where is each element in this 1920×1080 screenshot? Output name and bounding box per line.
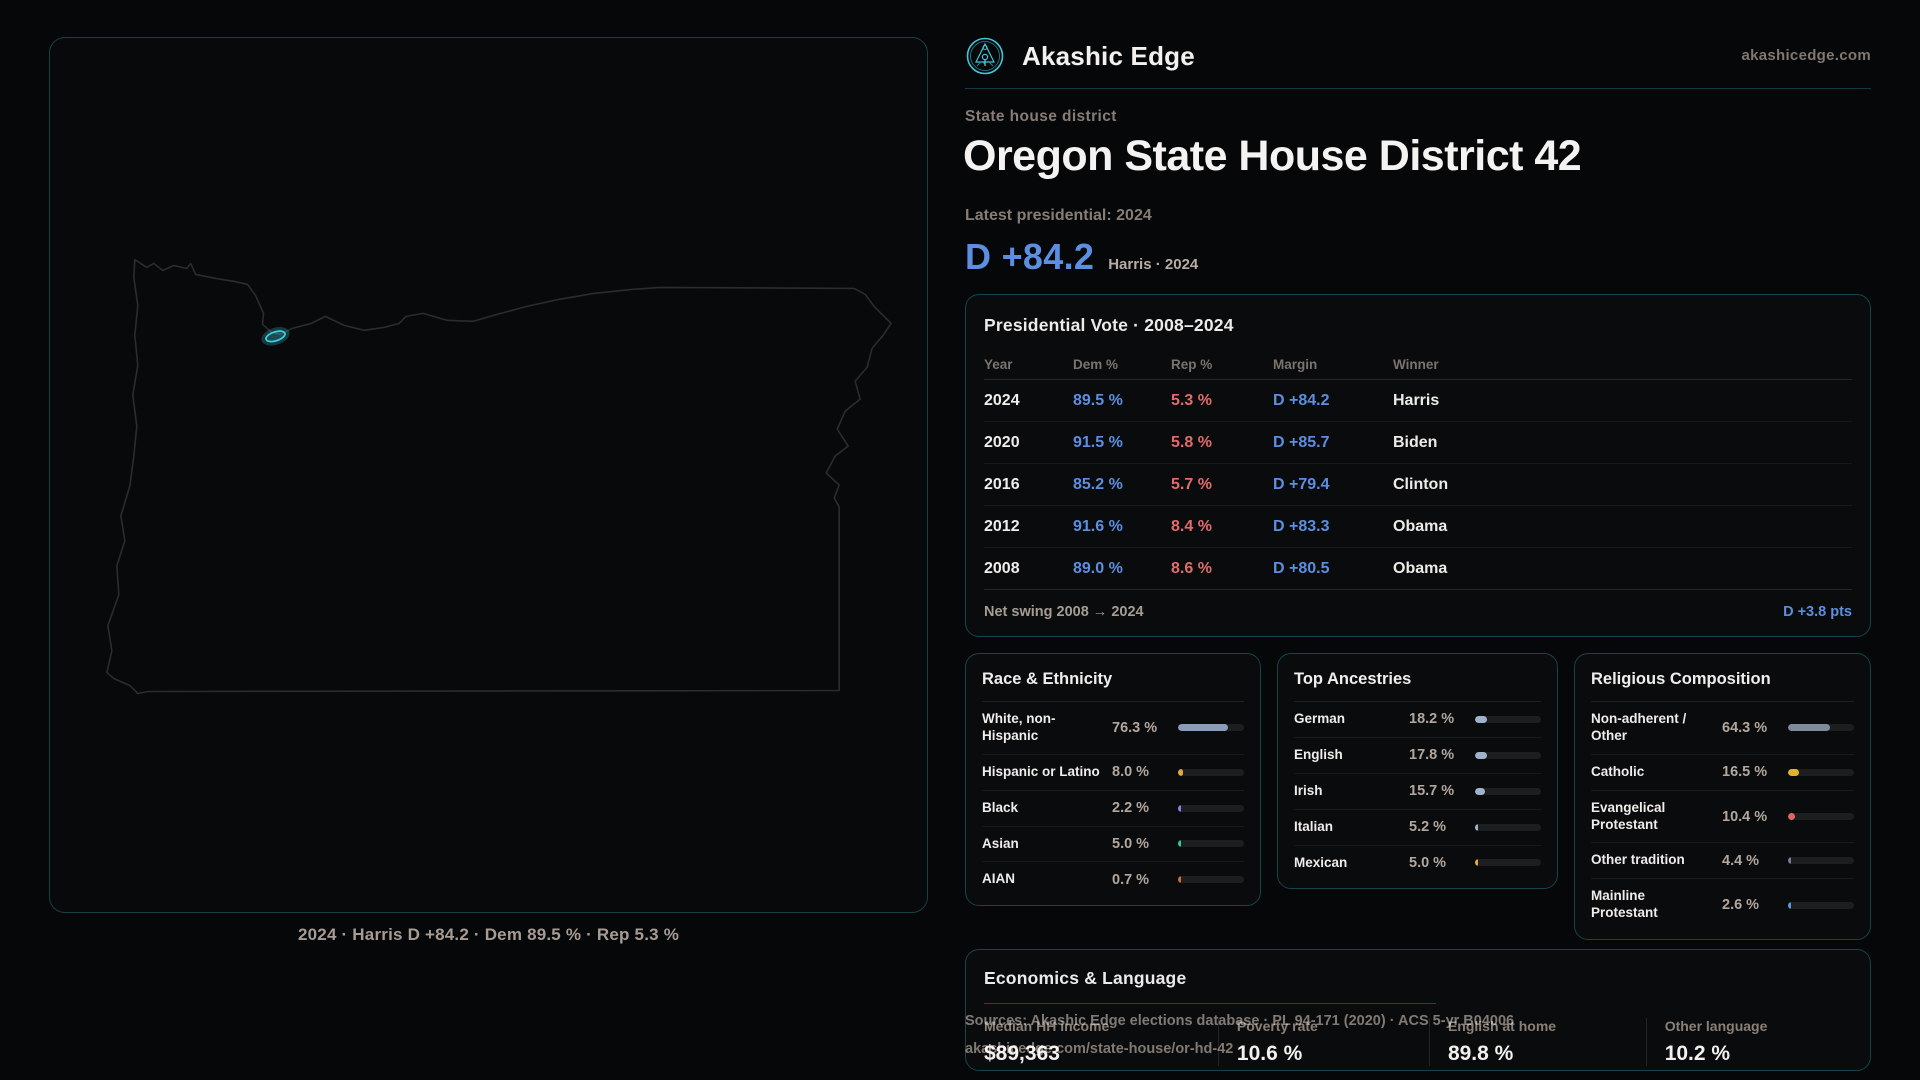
map-caption: 2024 · Harris D +84.2 · Dem 89.5 % · Rep… — [49, 925, 928, 945]
table-row: 2016 85.2 % 5.7 % D +79.4 Clinton — [984, 464, 1852, 506]
stat-label: Black — [982, 800, 1102, 817]
latest-presidential-label: Latest presidential: 2024 — [965, 207, 1152, 225]
stat-value: 5.0 % — [1409, 855, 1465, 871]
stat-value: 2.2 % — [1112, 800, 1168, 816]
year-cell: 2024 — [984, 392, 1073, 410]
list-item: AIAN 0.7 % — [982, 862, 1244, 897]
rep-cell: 5.7 % — [1171, 476, 1273, 494]
year-cell: 2012 — [984, 518, 1073, 536]
dem-cell: 89.0 % — [1073, 560, 1171, 578]
stat-english-at-home: English at home 89.8 % — [1429, 1018, 1646, 1066]
stat-value: 10.6 % — [1237, 1042, 1411, 1066]
stat-value: 89.8 % — [1448, 1042, 1628, 1066]
stat-bar — [1178, 840, 1244, 847]
list-item: White, non-Hispanic 76.3 % — [982, 702, 1244, 755]
net-swing-row: Net swing 2008 → 2024 D +3.8 pts — [984, 589, 1852, 633]
stat-label: English at home — [1448, 1018, 1628, 1034]
oregon-outline — [107, 259, 891, 693]
stat-label: Catholic — [1591, 764, 1712, 781]
net-swing-value: D +3.8 pts — [1783, 604, 1852, 620]
race-card-title: Race & Ethnicity — [982, 670, 1244, 702]
stat-label: Mexican — [1294, 855, 1399, 872]
col-margin: Margin — [1273, 357, 1393, 372]
col-rep: Rep % — [1171, 357, 1273, 372]
margin-cell: D +79.4 — [1273, 476, 1393, 494]
stat-bar — [1475, 859, 1541, 866]
margin-cell: D +80.5 — [1273, 560, 1393, 578]
brand-bar: Akashic Edge akashicedge.com — [965, 36, 1871, 78]
stat-value: 16.5 % — [1722, 764, 1778, 780]
stat-other-language: Other language 10.2 % — [1646, 1018, 1852, 1066]
winner-cell: Biden — [1393, 434, 1852, 452]
dem-cell: 85.2 % — [1073, 476, 1171, 494]
dem-cell: 89.5 % — [1073, 392, 1171, 410]
year-cell: 2008 — [984, 560, 1073, 578]
year-cell: 2016 — [984, 476, 1073, 494]
stat-value: 10.2 % — [1665, 1042, 1834, 1066]
stat-bar — [1788, 902, 1854, 909]
list-item: Non-adherent / Other 64.3 % — [1591, 702, 1854, 755]
list-item: Mainline Protestant 2.6 % — [1591, 879, 1854, 931]
stat-value: 15.7 % — [1409, 783, 1465, 799]
col-dem: Dem % — [1073, 357, 1171, 372]
dem-cell: 91.5 % — [1073, 434, 1171, 452]
presidential-table: Year Dem % Rep % Margin Winner 2024 89.5… — [984, 350, 1852, 633]
list-item: Hispanic or Latino 8.0 % — [982, 755, 1244, 791]
list-item: Other tradition 4.4 % — [1591, 843, 1854, 879]
stat-label: Irish — [1294, 783, 1399, 800]
stat-value: 2.6 % — [1722, 897, 1778, 913]
stat-value: 5.2 % — [1409, 819, 1465, 835]
headline-margin: D +84.2 Harris · 2024 — [965, 236, 1198, 278]
table-row: 2008 89.0 % 8.6 % D +80.5 Obama — [984, 548, 1852, 590]
stat-label: Hispanic or Latino — [982, 764, 1102, 781]
stat-bar — [1178, 769, 1244, 776]
margin-value: D +84.2 — [965, 236, 1094, 278]
header-divider — [965, 88, 1871, 89]
oregon-map — [50, 38, 927, 912]
akashic-edge-logo-icon — [965, 36, 1005, 76]
list-item: Evangelical Protestant 10.4 % — [1591, 791, 1854, 844]
state-map-panel — [49, 37, 928, 913]
economics-card-title: Economics & Language — [984, 968, 1852, 989]
winner-cell: Clinton — [1393, 476, 1852, 494]
religion-card-title: Religious Composition — [1591, 670, 1854, 702]
table-row: 2020 91.5 % 5.8 % D +85.7 Biden — [984, 422, 1852, 464]
table-row: 2024 89.5 % 5.3 % D +84.2 Harris — [984, 380, 1852, 422]
stat-label: Italian — [1294, 819, 1399, 836]
margin-cell: D +85.7 — [1273, 434, 1393, 452]
stat-value: 10.4 % — [1722, 809, 1778, 825]
stat-label: Other tradition — [1591, 852, 1712, 869]
stat-bar — [1788, 857, 1854, 864]
winner-cell: Obama — [1393, 518, 1852, 536]
dem-cell: 91.6 % — [1073, 518, 1171, 536]
page: 2024 · Harris D +84.2 · Dem 89.5 % · Rep… — [0, 0, 1920, 1080]
table-row: 2012 91.6 % 8.4 % D +83.3 Obama — [984, 506, 1852, 548]
stat-bar — [1788, 813, 1854, 820]
page-title: Oregon State House District 42 — [963, 132, 1581, 181]
rep-cell: 8.4 % — [1171, 518, 1273, 536]
stat-label: White, non-Hispanic — [982, 711, 1102, 745]
stat-bar — [1475, 824, 1541, 831]
stat-value: 0.7 % — [1112, 872, 1168, 888]
top-ancestries-card: Top Ancestries German 18.2 % English 17.… — [1277, 653, 1558, 889]
stat-median-income: Median HH income $89,363 — [984, 1018, 1218, 1066]
list-item: Asian 5.0 % — [982, 827, 1244, 863]
stat-label: Mainline Protestant — [1591, 888, 1712, 922]
stat-bar — [1475, 752, 1541, 759]
brand-domain-link[interactable]: akashicedge.com — [1741, 47, 1871, 64]
district-type-kicker: State house district — [965, 108, 1117, 126]
rep-cell: 8.6 % — [1171, 560, 1273, 578]
list-item: Mexican 5.0 % — [1294, 846, 1541, 881]
religious-composition-card: Religious Composition Non-adherent / Oth… — [1574, 653, 1871, 940]
stat-bar — [1178, 724, 1244, 731]
table-header-row: Year Dem % Rep % Margin Winner — [984, 350, 1852, 380]
list-item: German 18.2 % — [1294, 702, 1541, 738]
brand-name: Akashic Edge — [1022, 41, 1195, 72]
stat-poverty-rate: Poverty rate 10.6 % — [1218, 1018, 1429, 1066]
stat-value: 64.3 % — [1722, 720, 1778, 736]
margin-context: Harris · 2024 — [1108, 256, 1198, 273]
economics-divider — [984, 1003, 1436, 1004]
stat-value: 5.0 % — [1112, 836, 1168, 852]
year-cell: 2020 — [984, 434, 1073, 452]
stat-bar — [1475, 788, 1541, 795]
economics-stats: Median HH income $89,363 Poverty rate 10… — [984, 1018, 1852, 1066]
district-42-marker[interactable] — [261, 326, 290, 347]
stat-value: 76.3 % — [1112, 720, 1168, 736]
stat-bar — [1475, 716, 1541, 723]
stat-value: 4.4 % — [1722, 853, 1778, 869]
rep-cell: 5.8 % — [1171, 434, 1273, 452]
stat-label: Other language — [1665, 1018, 1834, 1034]
rep-cell: 5.3 % — [1171, 392, 1273, 410]
stat-label: Median HH income — [984, 1018, 1200, 1034]
ancestries-card-title: Top Ancestries — [1294, 670, 1541, 702]
col-winner: Winner — [1393, 357, 1852, 372]
stat-value: 8.0 % — [1112, 764, 1168, 780]
presidential-vote-card: Presidential Vote · 2008–2024 Year Dem %… — [965, 294, 1871, 637]
stat-bar — [1178, 805, 1244, 812]
stat-bar — [1788, 724, 1854, 731]
stat-bar — [1178, 876, 1244, 883]
list-item: Irish 15.7 % — [1294, 774, 1541, 810]
stat-value: 17.8 % — [1409, 747, 1465, 763]
list-item: Black 2.2 % — [982, 791, 1244, 827]
net-swing-label: Net swing 2008 → 2024 — [984, 604, 1144, 620]
presidential-card-title: Presidential Vote · 2008–2024 — [984, 315, 1852, 336]
stat-label: Poverty rate — [1237, 1018, 1411, 1034]
stat-label: Asian — [982, 836, 1102, 853]
list-item: Catholic 16.5 % — [1591, 755, 1854, 791]
stat-value: 18.2 % — [1409, 711, 1465, 727]
col-year: Year — [984, 357, 1073, 372]
stat-label: German — [1294, 711, 1399, 728]
stat-label: Non-adherent / Other — [1591, 711, 1712, 745]
list-item: Italian 5.2 % — [1294, 810, 1541, 846]
stat-value: $89,363 — [984, 1042, 1200, 1066]
stat-label: English — [1294, 747, 1399, 764]
race-ethnicity-card: Race & Ethnicity White, non-Hispanic 76.… — [965, 653, 1261, 906]
stat-label: AIAN — [982, 871, 1102, 888]
margin-cell: D +84.2 — [1273, 392, 1393, 410]
winner-cell: Harris — [1393, 392, 1852, 410]
economics-language-card: Economics & Language Median HH income $8… — [965, 949, 1871, 1071]
margin-cell: D +83.3 — [1273, 518, 1393, 536]
winner-cell: Obama — [1393, 560, 1852, 578]
stat-label: Evangelical Protestant — [1591, 800, 1712, 834]
list-item: English 17.8 % — [1294, 738, 1541, 774]
stat-bar — [1788, 769, 1854, 776]
